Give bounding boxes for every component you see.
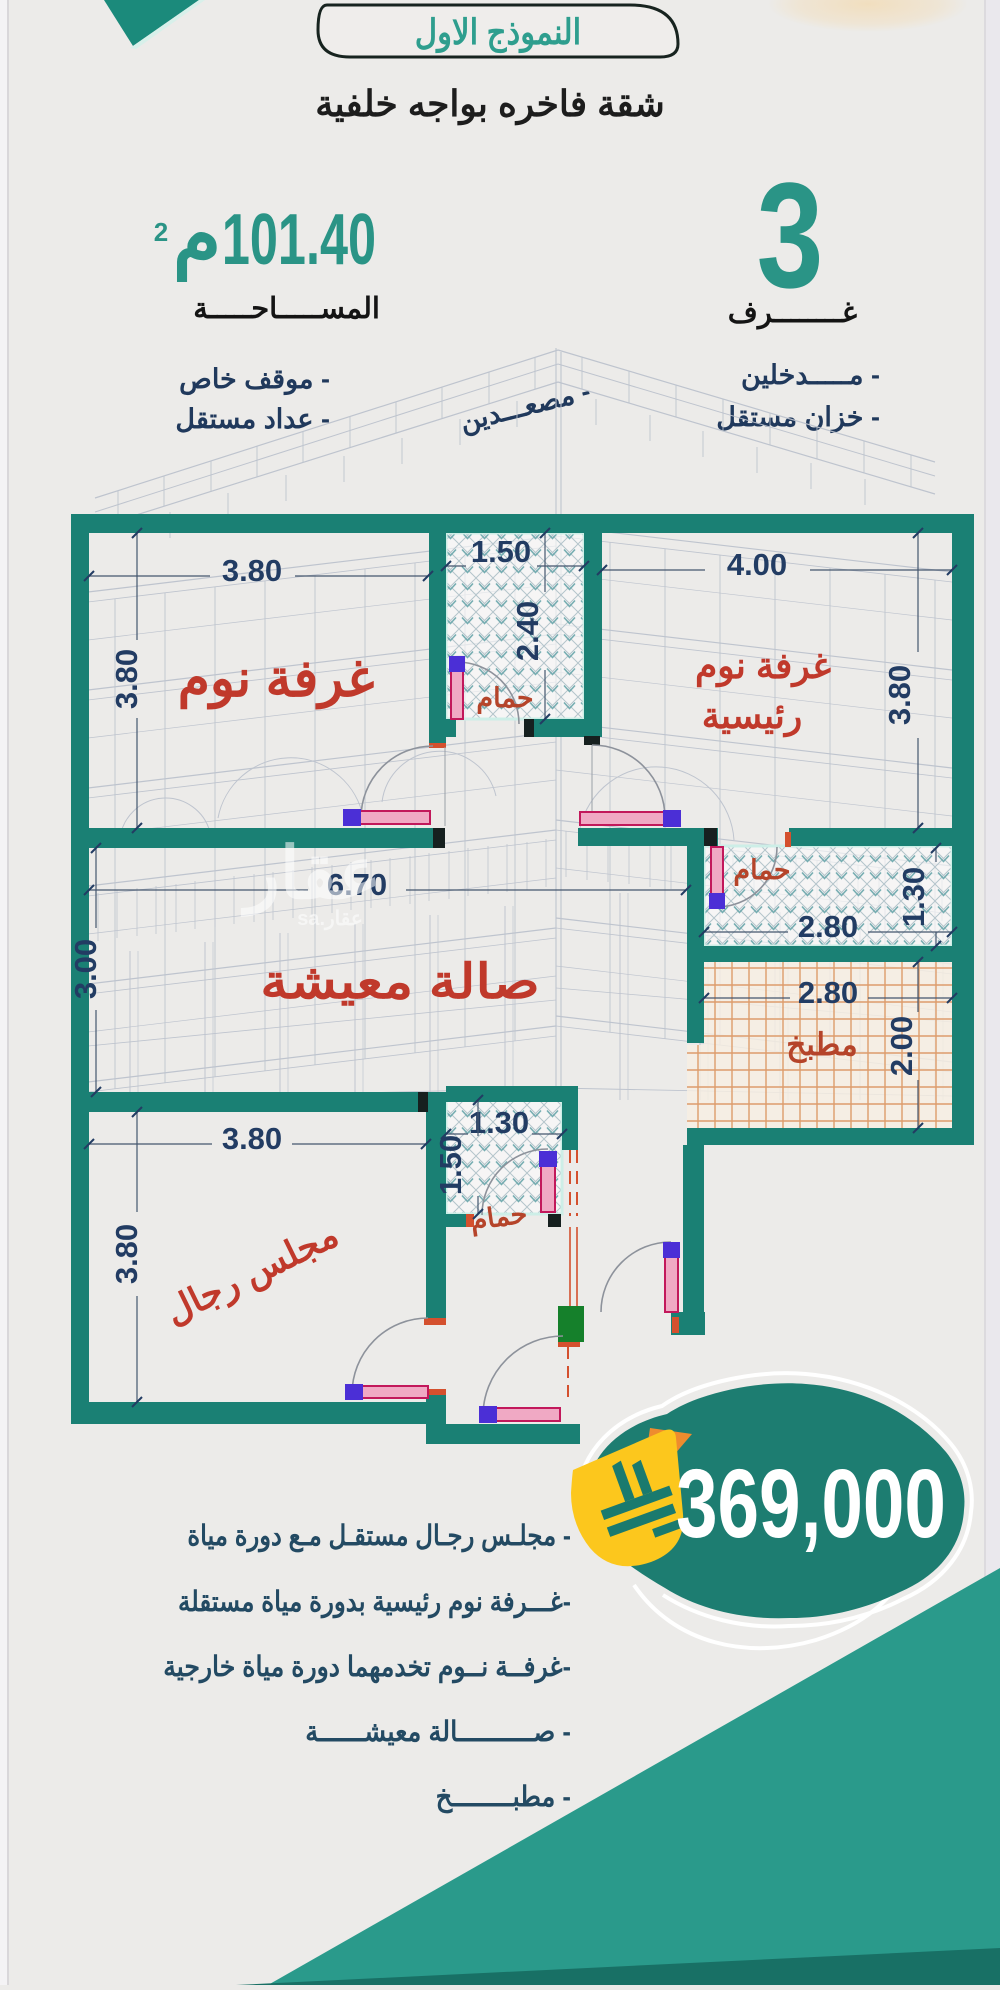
- svg-text:حمام: حمام: [476, 683, 533, 714]
- svg-text:2.00: 2.00: [884, 1016, 919, 1076]
- svg-text:3.00: 3.00: [68, 939, 103, 999]
- svg-text:عقار: عقار: [240, 834, 381, 917]
- svg-text:النموذج الاول: النموذج الاول: [415, 12, 581, 53]
- svg-text:عقار.sa: عقار.sa: [297, 908, 363, 931]
- svg-text:3: 3: [757, 151, 824, 319]
- svg-text:2.80: 2.80: [798, 909, 858, 944]
- svg-text:صالة معيشة: صالة معيشة: [260, 956, 539, 1010]
- svg-text:شقة فاخره بواجه خلفية: شقة فاخره بواجه خلفية: [315, 83, 665, 126]
- svg-text:غرفة نوم: غرفة نوم: [695, 645, 831, 688]
- svg-text:1.30: 1.30: [896, 867, 931, 927]
- svg-text:م: م: [173, 191, 221, 282]
- svg-text:3.80: 3.80: [222, 1121, 282, 1156]
- svg-text:4.00: 4.00: [727, 547, 787, 582]
- svg-text:2: 2: [154, 217, 168, 247]
- svg-text:- مـــــدخلين: - مـــــدخلين: [741, 360, 880, 392]
- svg-text:- موقف خاص: - موقف خاص: [179, 364, 330, 396]
- svg-text:3.80: 3.80: [109, 1224, 144, 1284]
- svg-text:1.50: 1.50: [471, 534, 531, 569]
- svg-text:1.50: 1.50: [433, 1135, 468, 1195]
- svg-text:369,000: 369,000: [676, 1451, 946, 1559]
- svg-text:3.80: 3.80: [109, 649, 144, 709]
- svg-text:-غـــرفة نوم رئيسية بدورة مياة: -غـــرفة نوم رئيسية بدورة مياة مستقلة: [178, 1586, 571, 1619]
- svg-text:2.40: 2.40: [510, 601, 545, 661]
- svg-text:-غرفــة نــوم تخدمهما دورة ميا: -غرفــة نــوم تخدمهما دورة مياة خارجية: [163, 1651, 571, 1685]
- svg-text:غرفة نوم: غرفة نوم: [178, 650, 375, 710]
- svg-text:3.80: 3.80: [222, 553, 282, 588]
- svg-text:مطبخ: مطبخ: [786, 1027, 857, 1064]
- svg-text:- مطبــــــــخ: - مطبــــــــخ: [436, 1781, 571, 1814]
- svg-text:- صــــــــــالة معيشــــــة: - صــــــــــالة معيشــــــة: [305, 1716, 571, 1747]
- svg-text:- مجلـس رجـال مستقـل مـع دورة: - مجلـس رجـال مستقـل مـع دورة مياة: [187, 1519, 571, 1552]
- svg-text:غــــــــرف: غــــــــرف: [728, 297, 857, 330]
- svg-text:2.80: 2.80: [798, 975, 858, 1010]
- svg-text:3.80: 3.80: [882, 665, 917, 725]
- svg-text:101.40: 101.40: [222, 200, 376, 280]
- svg-text:رئيسية: رئيسية: [702, 695, 803, 738]
- svg-text:- عداد مستقل: - عداد مستقل: [175, 404, 330, 434]
- svg-text:حمام: حمام: [733, 855, 790, 886]
- svg-text:المســـــاحـــــة: المســـــاحـــــة: [193, 293, 380, 325]
